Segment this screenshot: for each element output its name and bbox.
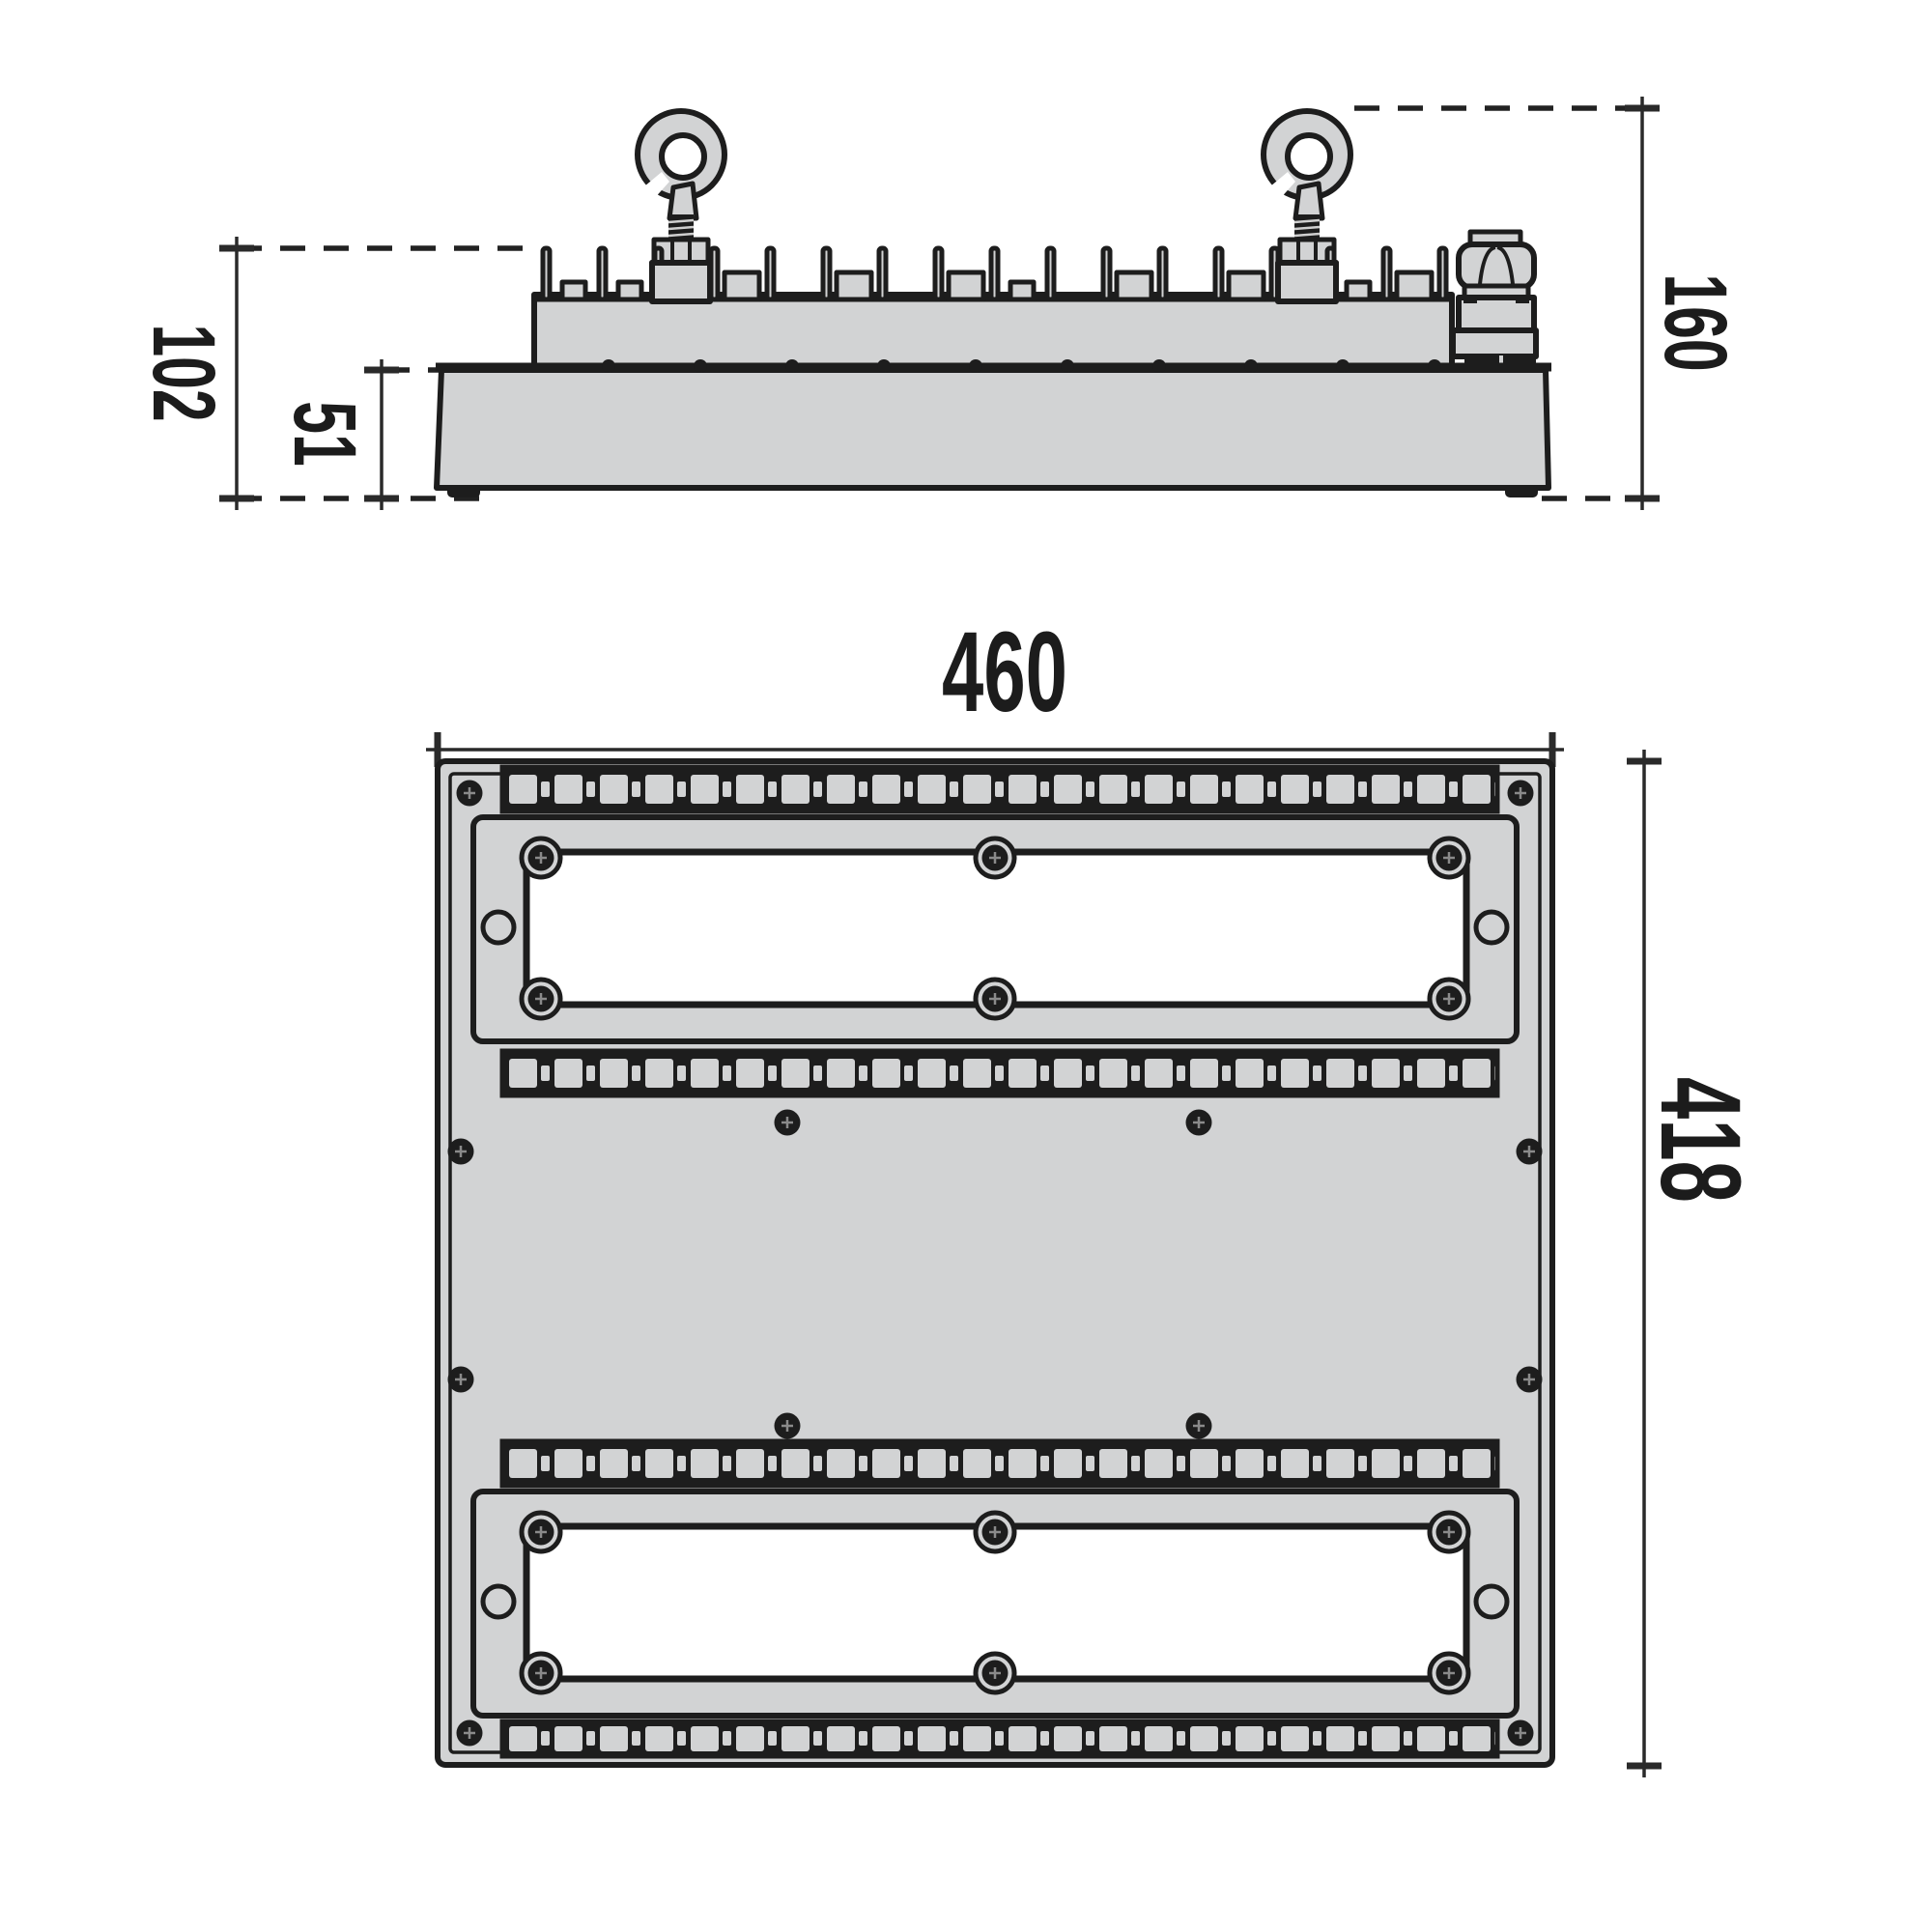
fin-strip-bottom bbox=[502, 1721, 1497, 1756]
fin-block bbox=[1010, 282, 1034, 299]
gland-hex-dome bbox=[1459, 244, 1534, 288]
eyebolt-eye bbox=[1288, 135, 1330, 178]
housing-screw bbox=[448, 1367, 474, 1393]
technical-drawing-page: 102 51 160 460 bbox=[0, 0, 1932, 1932]
eyebolt-eye bbox=[662, 135, 704, 178]
housing-screw bbox=[775, 1413, 801, 1439]
module-screw bbox=[982, 1520, 1009, 1546]
technical-drawing-canvas: 102 51 160 460 bbox=[0, 0, 1932, 1932]
housing-screw bbox=[1517, 1139, 1543, 1165]
dimension-102: 102 bbox=[134, 237, 254, 510]
module-screw bbox=[528, 845, 554, 871]
corner-screw bbox=[457, 1720, 483, 1747]
led-module-lower bbox=[473, 1492, 1517, 1716]
corner-screw bbox=[457, 781, 483, 807]
module-screw bbox=[1436, 1520, 1463, 1546]
base-foot bbox=[1505, 486, 1538, 497]
eyebolt-shank bbox=[1295, 184, 1322, 218]
corner-screw bbox=[1508, 781, 1534, 807]
eyebolt-shank bbox=[669, 184, 696, 218]
base-foot bbox=[447, 486, 480, 497]
fin-block bbox=[724, 272, 759, 299]
corner-screw bbox=[1508, 1720, 1534, 1747]
dimension-label-depth: 418 bbox=[1636, 1077, 1764, 1203]
mounting-hole bbox=[1476, 1586, 1507, 1617]
fin-block bbox=[837, 272, 871, 299]
fin-block bbox=[562, 282, 585, 299]
module-screw bbox=[982, 845, 1009, 871]
dimension-418: 418 bbox=[1627, 750, 1764, 1777]
mounting-hole bbox=[1476, 912, 1507, 943]
fin-block bbox=[618, 282, 641, 299]
module-screw bbox=[528, 1520, 554, 1546]
fin-block bbox=[949, 272, 983, 299]
fin-strip-upper-middle bbox=[502, 1051, 1497, 1095]
plan-view: 460 bbox=[426, 609, 1764, 1777]
eyebolt-mount-block bbox=[652, 263, 710, 301]
mounting-hole bbox=[483, 912, 514, 943]
dimension-51: 51 bbox=[275, 359, 399, 510]
module-screw bbox=[1436, 986, 1463, 1012]
dimension-label-overall-height: 160 bbox=[1646, 273, 1747, 371]
side-view: 102 51 160 bbox=[134, 97, 1747, 510]
eyebolt-mount-block bbox=[1278, 263, 1336, 301]
gland-base-block bbox=[1453, 330, 1536, 356]
housing-screw bbox=[1186, 1110, 1212, 1136]
housing-screw bbox=[1186, 1413, 1212, 1439]
housing-screw bbox=[448, 1139, 474, 1165]
fixture-base bbox=[436, 359, 1551, 497]
housing-screw bbox=[775, 1110, 801, 1136]
fin-strip-lower-middle bbox=[502, 1441, 1497, 1486]
module-screw bbox=[528, 986, 554, 1012]
cable-gland bbox=[1453, 232, 1536, 370]
housing-screw bbox=[1517, 1367, 1543, 1393]
mounting-hole bbox=[483, 1586, 514, 1617]
fin-block bbox=[1397, 272, 1432, 299]
fin-block bbox=[1347, 282, 1370, 299]
dimension-label-base-height: 51 bbox=[275, 401, 376, 467]
base-body bbox=[437, 370, 1548, 488]
dimension-label-body-height: 102 bbox=[134, 324, 235, 421]
module-screw bbox=[982, 1661, 1009, 1687]
fin-strip-top bbox=[502, 767, 1497, 811]
dimension-460: 460 bbox=[426, 609, 1564, 767]
led-module-upper bbox=[473, 817, 1517, 1041]
module-screw bbox=[1436, 845, 1463, 871]
module-screw bbox=[982, 986, 1009, 1012]
dimension-label-width: 460 bbox=[942, 609, 1067, 736]
dimension-160: 160 bbox=[1625, 97, 1747, 510]
fin-block bbox=[1117, 272, 1151, 299]
fin-block bbox=[1229, 272, 1264, 299]
heatsink-body bbox=[534, 295, 1452, 370]
module-screw bbox=[528, 1661, 554, 1687]
module-screw bbox=[1436, 1661, 1463, 1687]
